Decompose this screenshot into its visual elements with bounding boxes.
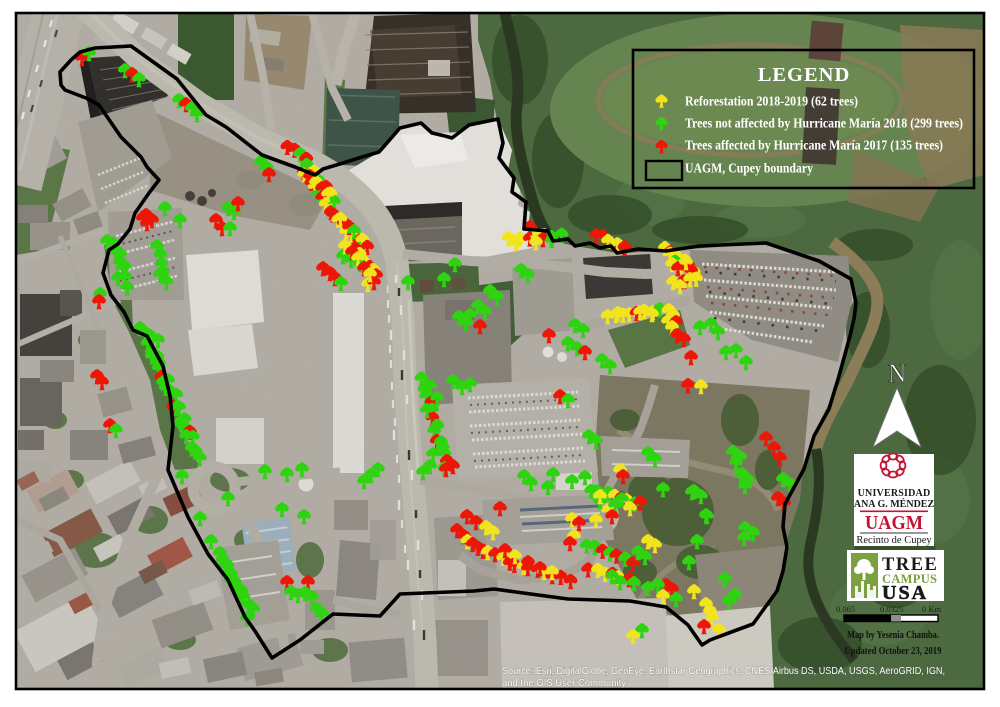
svg-text:0.065: 0.065	[836, 604, 855, 614]
svg-text:and the GIS User Community: and the GIS User Community	[502, 678, 627, 689]
svg-text:Trees affected by Hurricane Ma: Trees affected by Hurricane María 2017 (…	[685, 138, 943, 153]
svg-text:Source: Esri, DigitalGlobe, Ge: Source: Esri, DigitalGlobe, GeoEye, Eart…	[502, 666, 945, 677]
svg-text:ANA G. MÉNDEZ: ANA G. MÉNDEZ	[854, 498, 935, 510]
svg-text:UAGM: UAGM	[865, 513, 923, 534]
svg-text:UAGM, Cupey boundary: UAGM, Cupey boundary	[685, 161, 813, 176]
svg-text:Trees not affected by Hurrican: Trees not affected by Hurricane María 20…	[685, 116, 963, 131]
svg-text:Reforestation 2018-2019 (62 tr: Reforestation 2018-2019 (62 trees)	[685, 94, 858, 109]
svg-text:LEGEND: LEGEND	[758, 64, 851, 86]
svg-text:Map by Yesenia Chamba.: Map by Yesenia Chamba.	[847, 630, 939, 641]
svg-text:N: N	[888, 359, 907, 388]
svg-text:Recinto de Cupey: Recinto de Cupey	[856, 535, 932, 546]
svg-text:0 Km: 0 Km	[922, 604, 942, 614]
svg-text:USA: USA	[882, 582, 928, 604]
svg-text:0.0325: 0.0325	[880, 604, 903, 614]
svg-text:Updated October 23, 2019: Updated October 23, 2019	[845, 646, 942, 657]
svg-text:UNIVERSIDAD: UNIVERSIDAD	[858, 488, 931, 499]
